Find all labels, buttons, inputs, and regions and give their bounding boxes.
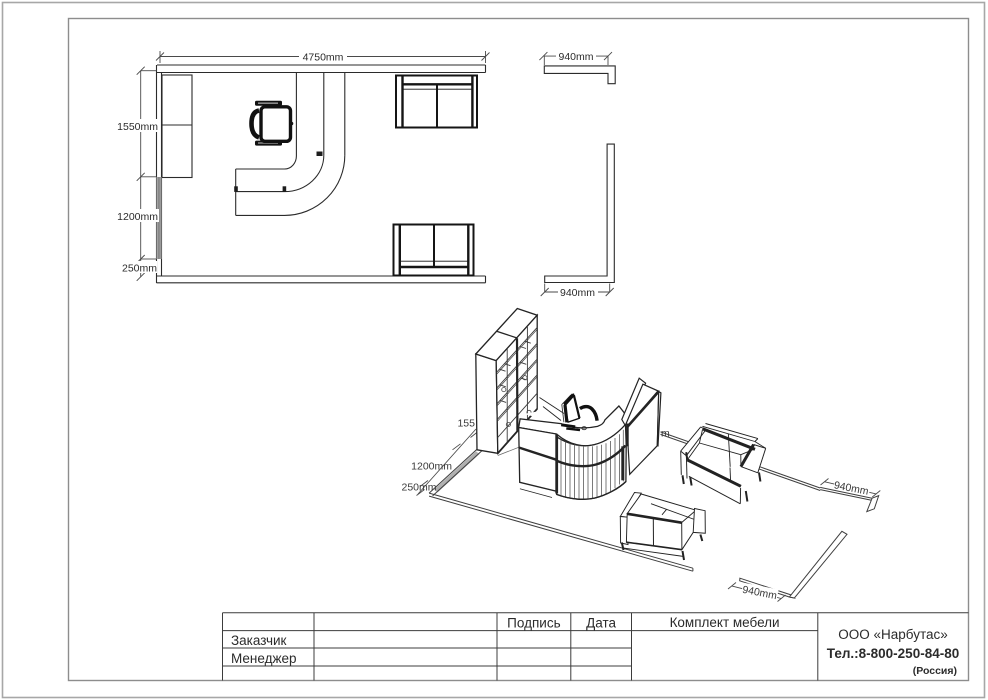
svg-text:Дата: Дата [586,615,616,630]
svg-text:4750mm: 4750mm [303,51,344,63]
svg-text:1200mm: 1200mm [411,461,452,473]
svg-text:Тел.:8-800-250-84-80: Тел.:8-800-250-84-80 [827,646,959,661]
svg-text:250mm: 250mm [401,482,436,494]
svg-text:1550mm: 1550mm [117,121,158,133]
svg-text:Менеджер: Менеджер [231,651,297,666]
svg-text:Заказчик: Заказчик [231,633,287,648]
svg-text:940mm: 940mm [560,287,595,299]
svg-text:Комплект мебели: Комплект мебели [670,615,780,630]
svg-text:155: 155 [457,418,475,430]
svg-text:Подпись: Подпись [507,615,560,630]
svg-text:1200mm: 1200mm [117,211,158,223]
svg-text:ООО «Нарбутас»: ООО «Нарбутас» [838,627,948,642]
svg-text:(Россия): (Россия) [913,665,957,677]
svg-text:250mm: 250mm [122,263,157,275]
svg-text:940mm: 940mm [558,51,593,63]
svg-text:m: m [661,428,670,440]
